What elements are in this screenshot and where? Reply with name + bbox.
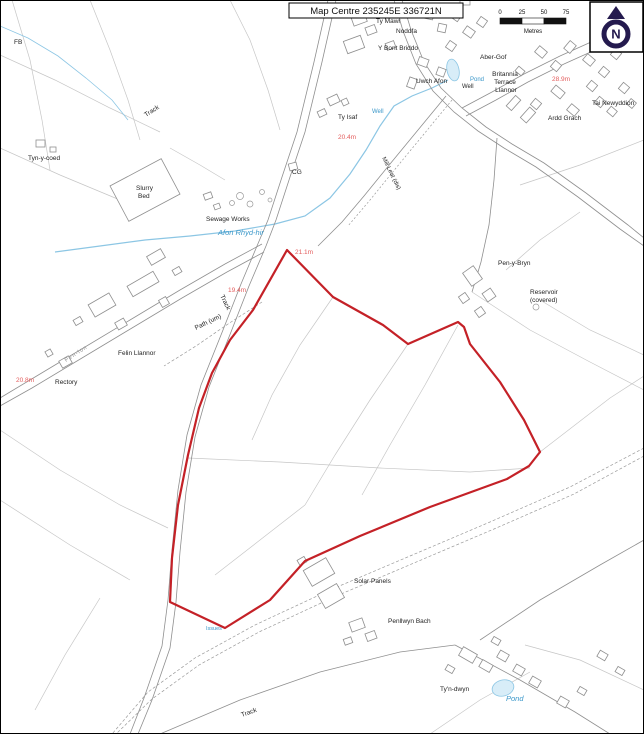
building [497, 650, 510, 662]
map-label: (covered) [530, 297, 557, 304]
building [88, 293, 116, 317]
map-label: 20.8m [16, 377, 34, 384]
building [506, 95, 521, 110]
building [474, 306, 485, 317]
map-label: Tai Newyddion [592, 100, 635, 107]
building [365, 631, 377, 642]
map-label: Track [240, 707, 258, 719]
map-label: 19.4m [228, 287, 246, 294]
map-label: 20.4m [338, 134, 356, 141]
building [535, 46, 548, 59]
map-label: Noddfa [396, 28, 417, 35]
pond-top-right [445, 58, 461, 82]
building [365, 25, 377, 36]
building [491, 636, 501, 645]
building [583, 54, 596, 67]
building [343, 637, 353, 645]
map-label: Britannia [492, 71, 518, 78]
building [341, 98, 349, 106]
building [327, 94, 340, 106]
map-label: Pond [506, 694, 524, 703]
building [615, 666, 625, 675]
map-label: Well [372, 109, 384, 115]
building [317, 584, 344, 609]
building [458, 292, 469, 303]
map-label: Pen-y-Bryn [498, 260, 531, 267]
scale-bar-segment-3 [544, 18, 566, 24]
reservoir-tank [533, 304, 539, 310]
map-label: Ty Mawr [376, 18, 401, 25]
scale-tick-75: 75 [563, 10, 570, 16]
map-label: Pond [470, 77, 484, 83]
scale-tick-25: 25 [519, 10, 526, 16]
map-label: Ardd Grach [548, 115, 582, 122]
building [213, 203, 220, 210]
map-label: 28.9m [552, 76, 570, 83]
building [50, 147, 56, 152]
building [437, 23, 446, 32]
building [476, 16, 487, 27]
scale-bar-segment-2 [522, 18, 544, 24]
map-label: Well [462, 84, 474, 90]
building [436, 67, 446, 77]
building [513, 664, 526, 676]
map-page: FBTyn-y-coedTrackSlurryBedSewage WorksAf… [0, 0, 644, 734]
map-label: Reservoir [530, 289, 559, 296]
building [463, 26, 476, 38]
building [557, 696, 570, 708]
scale-tick-50: 50 [541, 10, 548, 16]
building [459, 647, 478, 664]
map-label: Llannor [495, 87, 518, 94]
building [73, 316, 83, 325]
building [520, 107, 535, 123]
map-title-box: Map Centre 235245E 336721N [289, 3, 463, 18]
map-label: Issues [206, 626, 222, 632]
map-label: Aber-Gof [480, 54, 507, 61]
north-arrow-letter: N [611, 27, 620, 42]
building [36, 140, 45, 147]
map-title: Map Centre 235245E 336721N [310, 6, 442, 17]
scale-bar: 0 25 50 75 Metres [498, 10, 570, 35]
map-label: Track [218, 294, 232, 312]
building [317, 109, 327, 118]
map-label: Bed [138, 193, 150, 200]
building [127, 271, 159, 296]
building [445, 664, 455, 673]
building [172, 266, 182, 275]
building [417, 57, 429, 68]
map-label: 21.1m [295, 249, 313, 256]
map-label: Rectory [55, 379, 78, 386]
building [303, 558, 335, 587]
map-label: Tyn-y-coed [28, 155, 61, 162]
building [45, 349, 53, 357]
building [349, 618, 366, 632]
map-label: Ty'n-dwyn [440, 686, 469, 693]
building [343, 35, 364, 53]
building [607, 106, 618, 117]
map-canvas: FBTyn-y-coedTrackSlurryBedSewage WorksAf… [0, 0, 644, 734]
map-label: FB [14, 39, 22, 46]
scale-tick-0: 0 [498, 10, 502, 16]
building [577, 686, 587, 695]
map-label: Solar Panels [354, 578, 392, 585]
building [551, 85, 565, 99]
map-label: Y Bont Briddo [378, 45, 418, 52]
building [445, 40, 456, 51]
map-label: Path (um) [194, 313, 223, 332]
building [147, 249, 166, 266]
building [479, 660, 493, 673]
map-label: Penllwyn Bach [388, 618, 431, 625]
map-label: Ty Isaf [338, 114, 357, 121]
map-label: CG [292, 169, 302, 176]
map-label: Slurry [136, 185, 154, 192]
north-arrow: N [590, 2, 643, 52]
water-features [0, 26, 516, 699]
building [618, 82, 629, 93]
map-label: Uwch Afon [416, 78, 447, 85]
map-label: Felin Llannor [118, 350, 156, 357]
map-label: Track [143, 104, 161, 119]
map-label: Pen-lon [64, 345, 89, 364]
building [530, 98, 541, 109]
building [203, 192, 213, 200]
building [598, 66, 609, 77]
map-label: Mill Leat (dis) [380, 156, 401, 191]
map-label: Afon Rhyd-hir [217, 228, 264, 237]
scale-unit: Metres [524, 29, 542, 35]
map-label: Terrace [494, 79, 516, 86]
building [159, 297, 170, 308]
building [586, 80, 597, 91]
building [463, 266, 483, 287]
scale-bar-segment-1 [500, 18, 522, 24]
building [564, 41, 577, 54]
building [597, 650, 608, 661]
map-label: Sewage Works [206, 216, 250, 223]
